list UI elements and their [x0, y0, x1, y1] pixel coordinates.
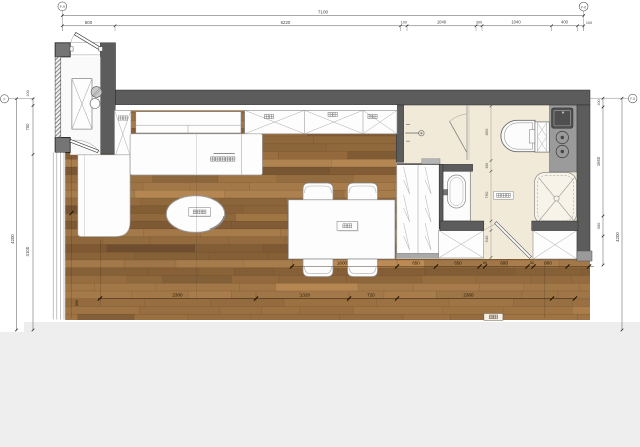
svg-text:1660: 1660	[596, 156, 601, 166]
svg-text:F-6: F-6	[581, 5, 586, 9]
svg-text:2300: 2300	[172, 292, 183, 297]
svg-text:50: 50	[530, 261, 534, 265]
svg-text:4200: 4200	[10, 234, 15, 244]
svg-text:650: 650	[454, 260, 462, 265]
svg-text:1040: 1040	[437, 20, 447, 25]
svg-text:60: 60	[483, 261, 487, 265]
svg-text:720: 720	[367, 292, 375, 297]
svg-text:F-9: F-9	[60, 5, 65, 9]
svg-text:6220: 6220	[281, 20, 291, 25]
svg-text:100: 100	[586, 21, 592, 25]
svg-text:7100: 7100	[318, 10, 329, 15]
svg-text:F: F	[4, 98, 6, 102]
svg-text:650: 650	[75, 300, 79, 306]
svg-text:600: 600	[544, 260, 552, 265]
svg-text:300: 300	[476, 20, 482, 24]
svg-text:2360: 2360	[463, 292, 474, 297]
svg-text:400: 400	[561, 20, 569, 25]
svg-text:1320: 1320	[300, 292, 311, 297]
svg-text:F-5: F-5	[630, 97, 635, 101]
svg-text:3100: 3100	[25, 246, 30, 256]
svg-text:750: 750	[25, 123, 30, 131]
svg-text:100: 100	[597, 99, 601, 105]
svg-text:4200: 4200	[615, 232, 620, 242]
svg-text:190: 190	[485, 163, 489, 169]
svg-text:1040: 1040	[511, 20, 521, 25]
svg-text:100: 100	[401, 20, 407, 24]
svg-text:760: 760	[484, 191, 489, 198]
svg-text:650: 650	[412, 260, 420, 265]
svg-text:850: 850	[484, 128, 489, 135]
svg-text:1600: 1600	[337, 260, 348, 265]
svg-text:100: 100	[26, 90, 30, 96]
svg-text:600: 600	[500, 260, 508, 265]
svg-text:540: 540	[484, 235, 489, 242]
svg-text:300: 300	[596, 222, 601, 229]
svg-text:800: 800	[85, 20, 93, 25]
